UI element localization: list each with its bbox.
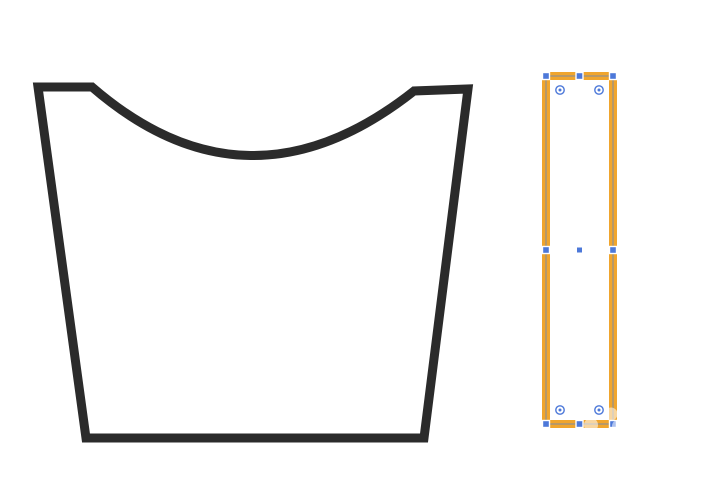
handle-middle-left[interactable] <box>543 247 550 254</box>
center-point-marker[interactable] <box>577 248 582 253</box>
handle-bottom-center[interactable] <box>576 421 583 428</box>
corner-widget-top-right[interactable] <box>595 86 603 94</box>
corner-widget-top-left[interactable] <box>556 86 564 94</box>
artboard-svg <box>0 0 715 488</box>
handle-middle-right[interactable] <box>610 247 617 254</box>
editor-canvas[interactable] <box>0 0 715 488</box>
handle-top-left[interactable] <box>543 73 550 80</box>
handle-top-center[interactable] <box>576 73 583 80</box>
handle-top-right[interactable] <box>610 73 617 80</box>
corner-widget-bottom-left[interactable] <box>556 406 564 414</box>
bucket-shape-path[interactable] <box>38 87 468 438</box>
corner-widget-bottom-right[interactable] <box>595 406 603 414</box>
handle-bottom-left[interactable] <box>543 421 550 428</box>
